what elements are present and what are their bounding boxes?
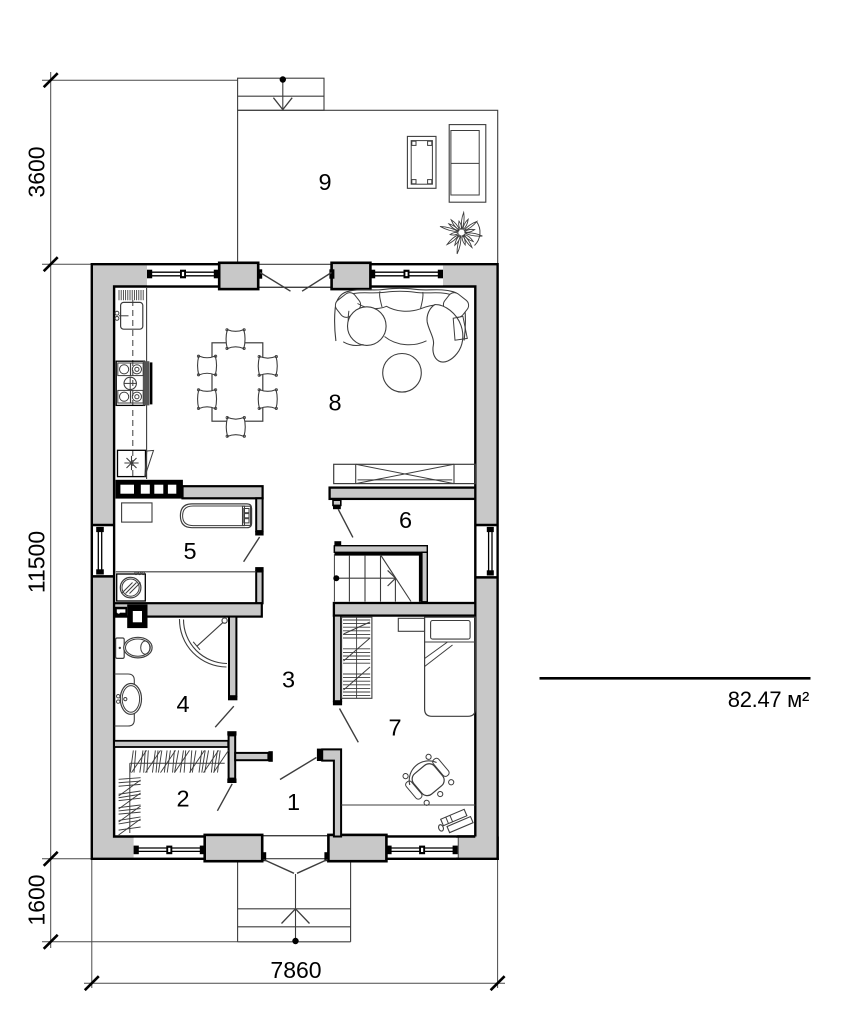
svg-text:8: 8: [328, 390, 341, 416]
svg-text:6: 6: [399, 507, 412, 533]
svg-text:7: 7: [388, 715, 401, 741]
svg-text:82.47 м²: 82.47 м²: [728, 687, 809, 712]
svg-text:3600: 3600: [24, 146, 50, 197]
svg-text:4: 4: [176, 691, 189, 717]
svg-text:7860: 7860: [270, 957, 321, 983]
svg-text:9: 9: [318, 169, 331, 195]
svg-text:11500: 11500: [24, 531, 50, 593]
svg-text:5: 5: [183, 538, 196, 564]
svg-text:2: 2: [176, 786, 189, 812]
svg-text:1: 1: [287, 789, 300, 815]
svg-text:1600: 1600: [24, 874, 50, 925]
svg-text:3: 3: [282, 667, 295, 693]
